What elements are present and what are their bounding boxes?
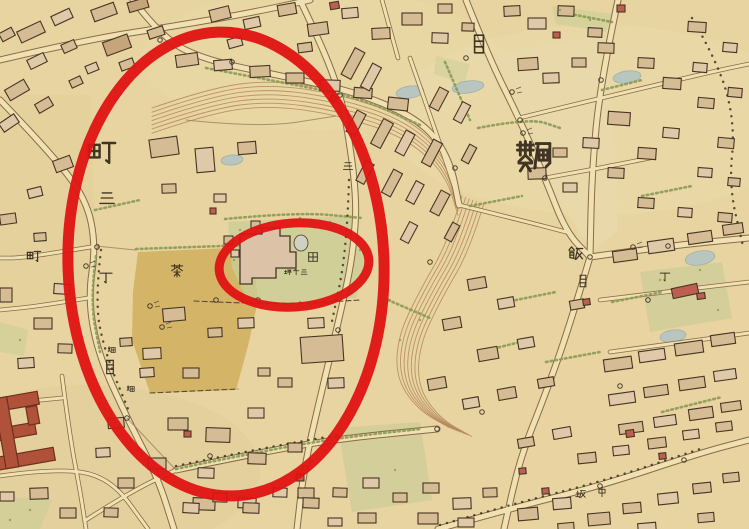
historical-map-view bbox=[0, 0, 749, 529]
map-canvas bbox=[0, 0, 749, 529]
